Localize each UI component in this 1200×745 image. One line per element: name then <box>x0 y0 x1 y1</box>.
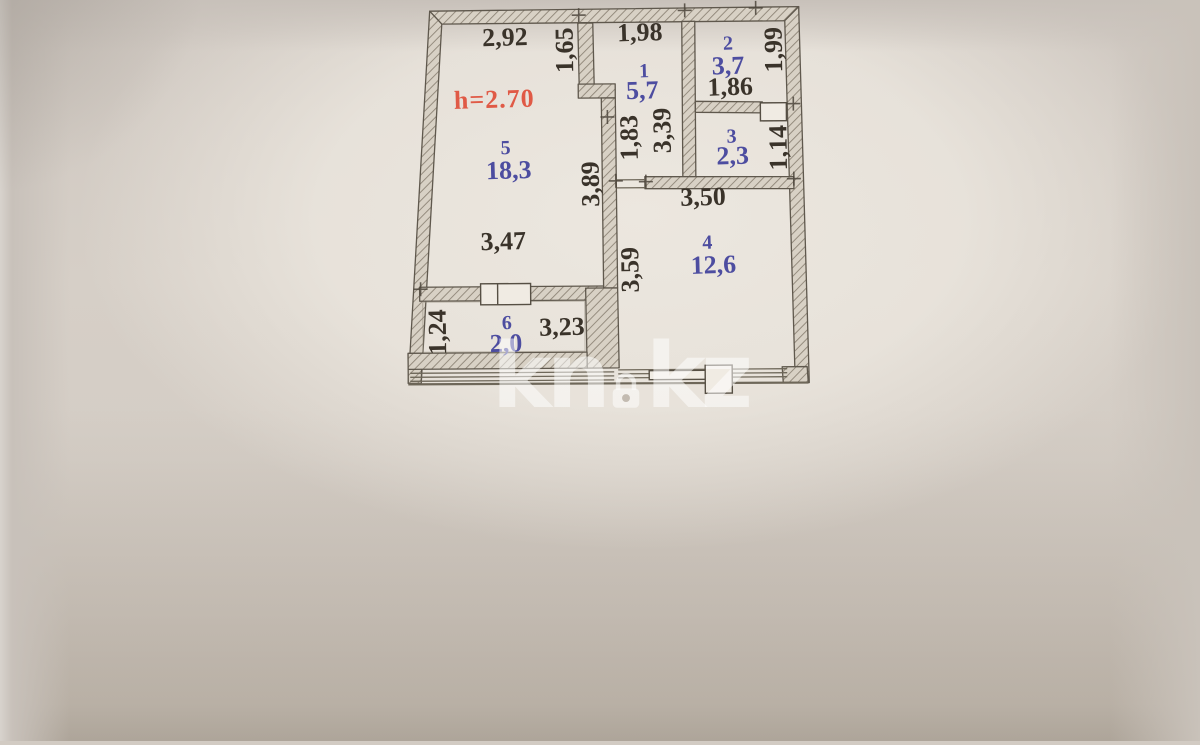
room-3-area: 2,3 <box>716 141 749 172</box>
lock-icon <box>611 372 641 410</box>
dim-room3-depth: 1,14 <box>763 125 794 171</box>
dim-room2-depth: 1,99 <box>759 27 790 73</box>
dim-room4-top-width: 3,50 <box>680 182 726 213</box>
dim-balcony-depth: 1,24 <box>423 309 454 355</box>
ceiling-height-label: h=2.70 <box>454 84 536 116</box>
dim-corridor-notch-depth: 1,65 <box>550 27 581 73</box>
dim-corridor-length: 3,39 <box>647 108 678 154</box>
watermark-text-right: kz <box>646 332 748 422</box>
dim-room5-length: 3,89 <box>576 161 607 207</box>
dim-corridor-top-width: 1,98 <box>617 17 663 48</box>
watermark-text-left: kn <box>492 332 606 422</box>
dim-room5-top-width: 2,92 <box>482 22 528 53</box>
dim-room4-length: 3,59 <box>615 247 646 293</box>
room-4-area: 12,6 <box>690 250 736 281</box>
watermark: kn kz <box>478 332 762 422</box>
room-1-area: 5,7 <box>626 75 659 106</box>
room-5-area: 18,3 <box>486 155 532 186</box>
dim-room5-bottom-width: 3,47 <box>480 226 526 257</box>
room-2-area: 3,7 <box>711 51 744 82</box>
dim-corridor-lower-width: 1,83 <box>614 115 645 161</box>
